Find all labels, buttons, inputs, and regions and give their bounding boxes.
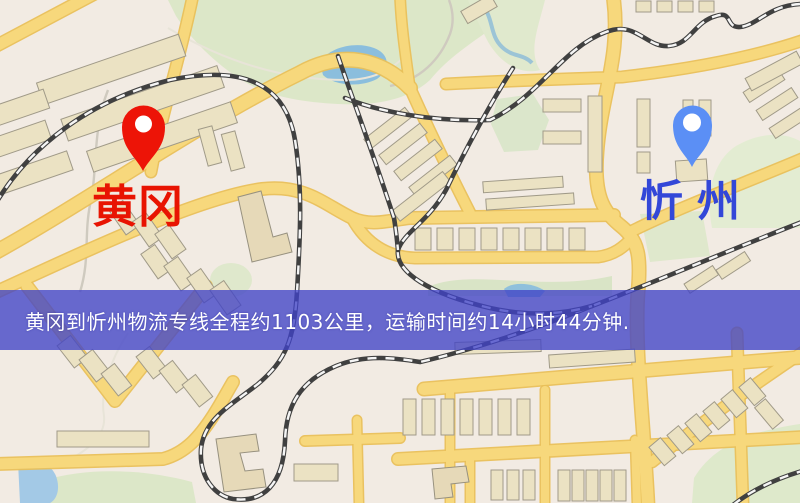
destination-label: 忻州 — [640, 177, 754, 227]
origin-pin-hole — [135, 116, 152, 133]
map-artwork: 黄冈 忻州 — [0, 0, 800, 503]
route-info-banner: 黄冈到忻州物流专线全程约1103公里，运输时间约14小时44分钟. — [0, 290, 800, 350]
route-info-text: 黄冈到忻州物流专线全程约1103公里，运输时间约14小时44分钟. — [25, 306, 630, 335]
origin-label: 黄冈 — [92, 180, 184, 233]
destination-pin-hole — [683, 114, 701, 132]
map: 黄冈 忻州 黄冈到忻州物流专线全程约1103公里，运输时间约14小时44分钟. — [0, 0, 800, 503]
